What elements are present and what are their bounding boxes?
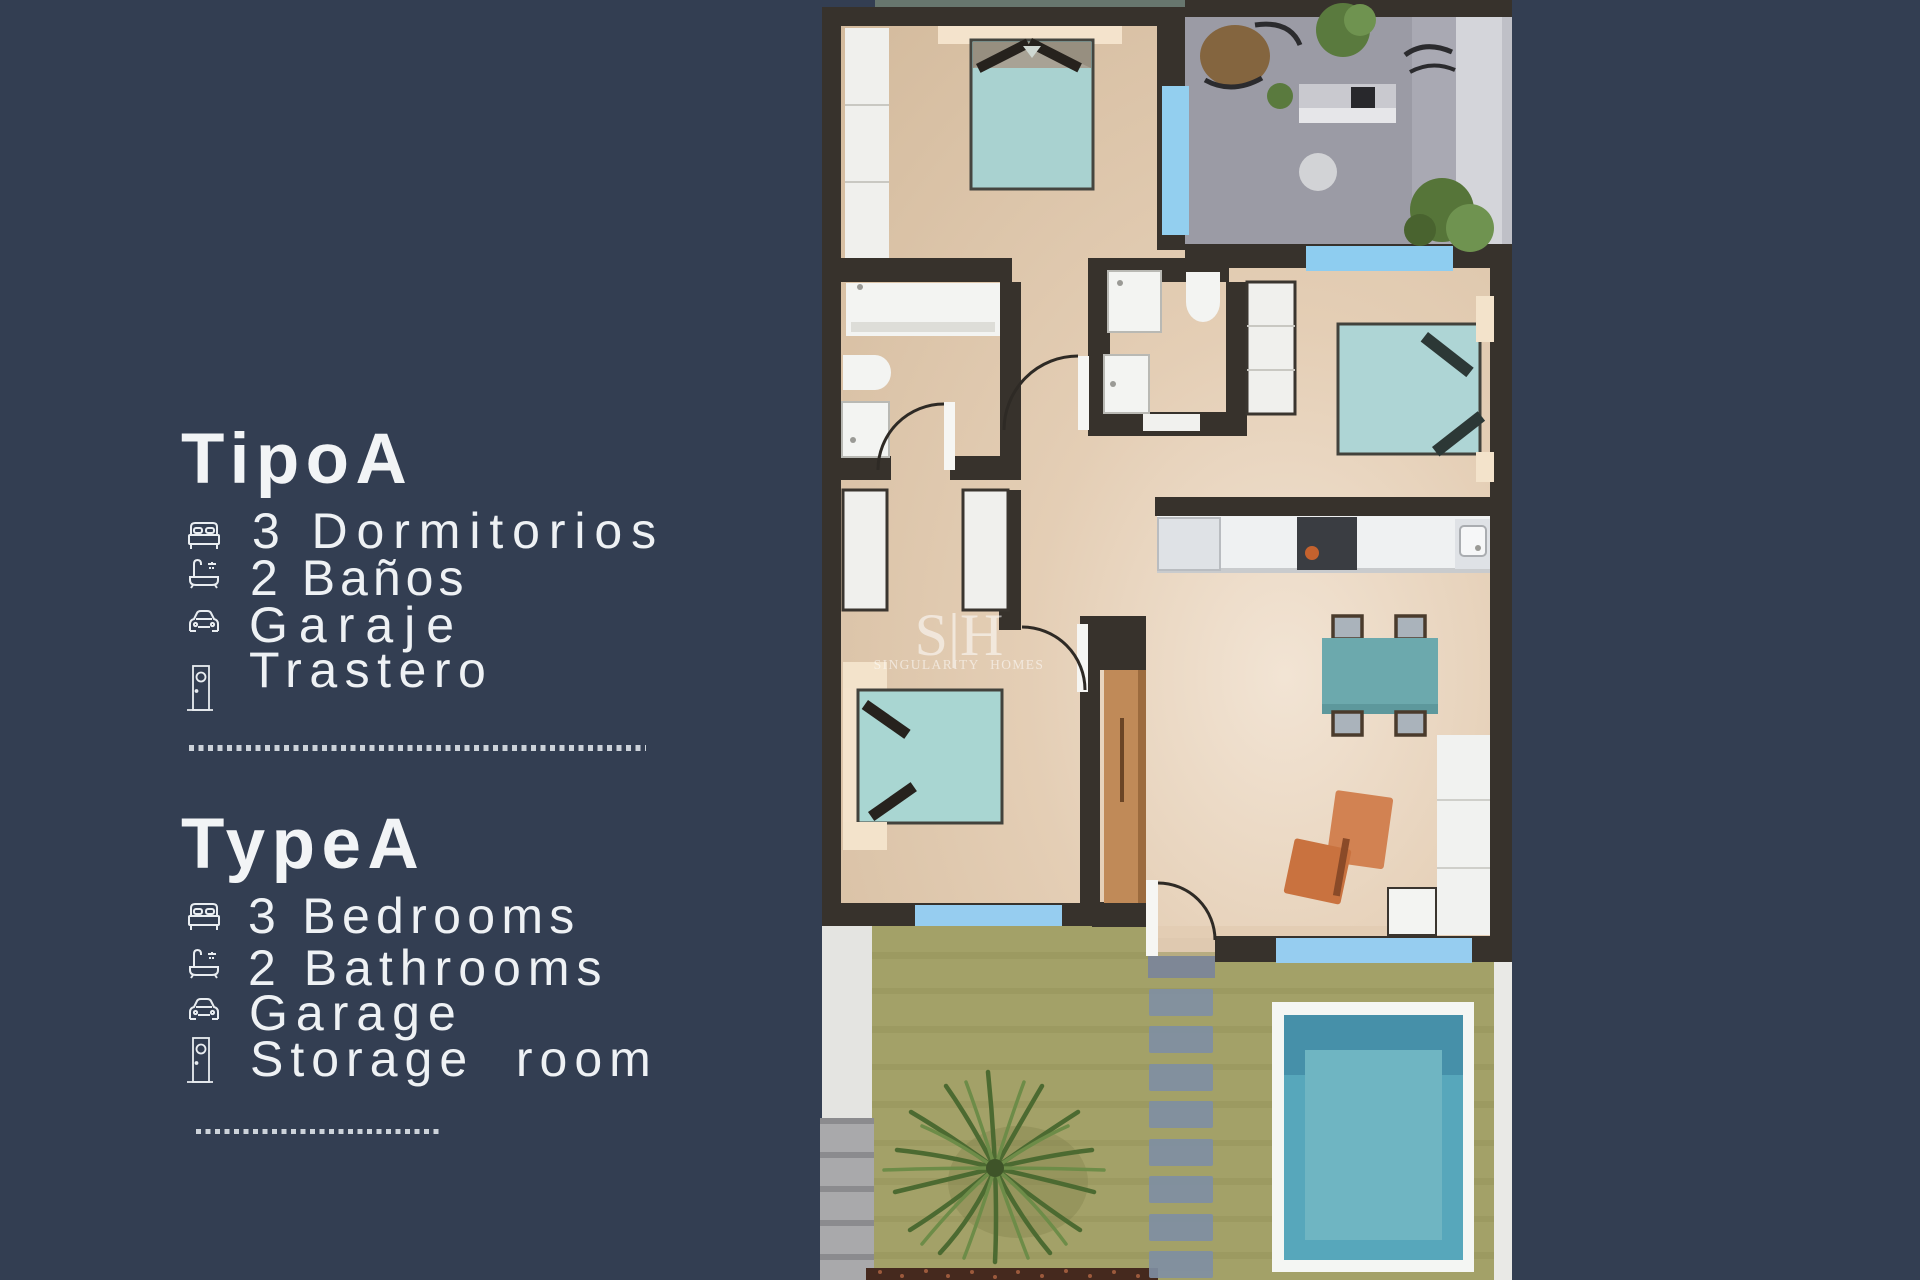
svg-text:SINGULARITY HOMES: SINGULARITY HOMES — [874, 657, 1045, 672]
